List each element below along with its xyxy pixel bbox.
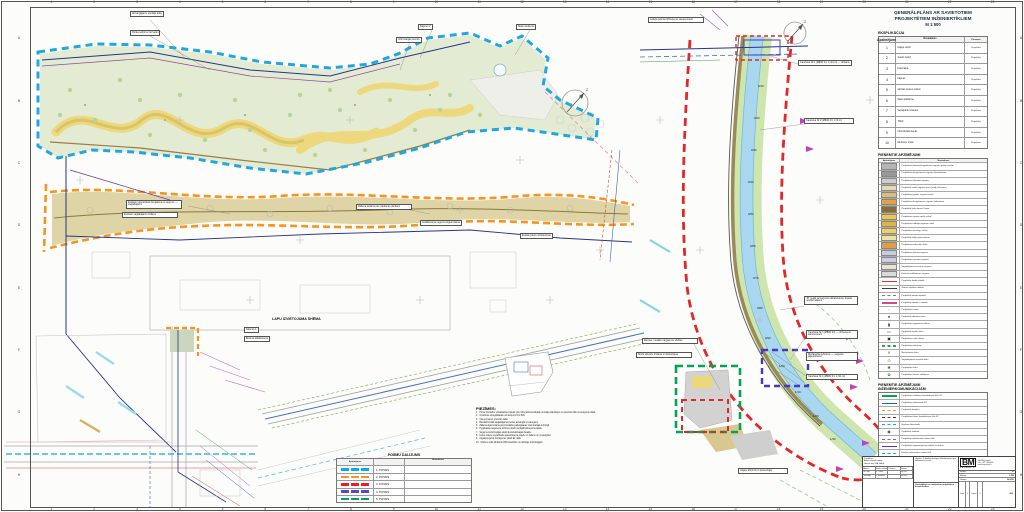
posmi-dash xyxy=(351,476,359,479)
callout-box: "R" veida armogrunts atbalstsiena, krast… xyxy=(804,296,858,305)
field-label: Stadija xyxy=(959,471,967,474)
legend-row: ⊙Saglabājamais esošais koks xyxy=(879,356,987,363)
legend-row: ●Projektētā atkritumu urna xyxy=(879,313,987,320)
legend-swatch: ⊙ xyxy=(879,357,900,363)
symbol-swatch: ● xyxy=(888,315,890,319)
fill-swatch xyxy=(881,163,897,169)
line-swatch xyxy=(882,446,897,447)
drawing-sheet: 1234567891011121314151617181920212223 12… xyxy=(0,0,1024,512)
dashed-line-swatch xyxy=(882,410,897,411)
legend-row: Zemes vienības robeža xyxy=(879,285,987,292)
note-number: 7. xyxy=(476,432,478,435)
posmi-dash xyxy=(341,483,349,486)
station-label: 0/60 xyxy=(750,244,756,248)
legend-row: Projektētais betona segums xyxy=(879,249,987,256)
legend-swatch xyxy=(879,199,900,205)
legend-swatch xyxy=(879,192,900,198)
grid-number: 15 xyxy=(629,507,672,511)
fill-swatch xyxy=(881,199,897,205)
note-number: 1. xyxy=(476,412,478,415)
explikacija-row: 3Koka laipaProjektēts xyxy=(879,63,987,74)
grid-number: 15 xyxy=(629,0,672,4)
posmi-dash xyxy=(361,498,369,501)
explikacija-row: 4KāpnesProjektēts xyxy=(879,74,987,85)
bm-logo: BM xyxy=(960,458,976,468)
legend-swatch xyxy=(879,415,900,421)
explikacija-row: 2Grants celiņšProjektēts xyxy=(879,53,987,64)
fill-swatch xyxy=(881,264,897,270)
note-number: 2. xyxy=(476,415,478,418)
legend-row: Projektēto darbu robeža xyxy=(879,277,987,284)
station-label: 1/30 xyxy=(830,437,836,441)
legend-label: Projektētais apgaismojuma kabelis un bal… xyxy=(900,445,987,449)
grid-letter: C xyxy=(14,132,24,194)
station-label: 1/00 xyxy=(779,364,785,368)
legend-label: Projektētais šķembu segums xyxy=(900,179,987,183)
callout-box: Kāpnes 2 xyxy=(418,24,433,30)
fill-swatch xyxy=(881,257,897,263)
callout-box: Caurteka Nr.4 (Ø600 b/t, L=11 m) xyxy=(806,374,858,380)
legend-row: Projektētais grants seguma celiņš xyxy=(879,191,987,198)
explikacija-note: Projektēts xyxy=(965,75,987,85)
station-label: 0/40 xyxy=(748,180,754,184)
explikacija-row: 7Velosipēdu novietneProjektēts xyxy=(879,106,987,117)
explikacija-row: 6Skatu platformaProjektēts xyxy=(879,95,987,106)
grid-letter: C xyxy=(1016,132,1024,194)
legend-swatch xyxy=(879,407,900,413)
callout-box: Zāliena sēšana pēc rakšanas darbiem xyxy=(356,204,412,210)
symbol-swatch: ▣ xyxy=(887,337,891,341)
explikacija-table: Apzīmējums Nosaukums Piezīmes 1Gājēju ce… xyxy=(878,36,988,148)
explikacija-num: 6 xyxy=(879,96,896,106)
explikacija-row: 1Gājēju celiņšProjektēts xyxy=(879,42,987,53)
legend-row: ✿Projektētais krūmu stādījums xyxy=(879,371,987,378)
explikacija-row: 9Informācijas stendsProjektēts xyxy=(879,127,987,138)
col-header: Apzīmējums xyxy=(879,37,896,42)
grid-letter: F xyxy=(14,319,24,381)
legend-row: ▣Projektētais velo statīvs xyxy=(879,335,987,342)
explikacija-note: Projektēts xyxy=(965,117,987,127)
grid-number: 1 xyxy=(30,507,73,511)
grid-number: 13 xyxy=(543,0,586,4)
note-text: Projektētās augstuma atzīmes skatīt vert… xyxy=(479,428,542,431)
legend-label: Projektētā zālāja atjaunošana xyxy=(900,237,987,241)
grid-number: 4 xyxy=(158,507,201,511)
station-label: 0/70 xyxy=(753,276,759,280)
grid-number: 5 xyxy=(201,0,244,4)
note-item: 6.Projektētās augstuma atzīmes skatīt ve… xyxy=(476,428,652,431)
col-header: Nosaukums xyxy=(405,459,471,465)
symbol-swatch: ⊙ xyxy=(887,359,890,363)
station-label: 0/30 xyxy=(751,148,757,152)
legend-label: Nocērtamais koks xyxy=(900,352,987,356)
legend1-title: PIEŅEMTIE APZĪMĒJUMI xyxy=(878,153,988,157)
note-number: 3. xyxy=(476,419,478,422)
legend-row: ◦Projektētais soliņš xyxy=(879,306,987,313)
legend-row: Projektētā drenāža xyxy=(879,406,987,413)
posmi-dash xyxy=(351,498,359,501)
fill-swatch xyxy=(881,228,897,234)
fill-swatch xyxy=(881,171,897,177)
explikacija-name: Skatu platforma xyxy=(896,96,965,106)
legend-swatch xyxy=(879,171,900,177)
station-label: 0/20 xyxy=(754,116,760,120)
station-label: 0/90 xyxy=(765,336,771,340)
symbol-swatch: ✕ xyxy=(887,351,890,355)
posmi-dash-symbol xyxy=(337,474,374,480)
note-number: 10. xyxy=(476,442,479,445)
explikacija-note: Projektēts xyxy=(965,43,987,53)
field-value: 04.2021 xyxy=(1006,478,1015,481)
grid-number: 17 xyxy=(715,507,758,511)
object-text: Publiskās ārtelpas labiekārtojums gar ūd… xyxy=(915,458,956,462)
legend-label: Projektētais sadzīves kanalizācijas tīkl… xyxy=(900,394,987,398)
explikacija-note: Projektēts xyxy=(965,54,987,64)
grid-number: 11 xyxy=(458,0,501,4)
grid-number: 18 xyxy=(757,0,800,4)
grid-number: 19 xyxy=(800,507,843,511)
sig-header: Amats xyxy=(863,467,876,470)
col-header xyxy=(374,459,405,465)
dashed-line-swatch xyxy=(882,439,897,440)
sig-header: Vārds, uzvārds xyxy=(876,467,889,470)
title-block-middle: Objekts: Publiskās ārtelpas labiekārtoju… xyxy=(914,457,959,507)
grid-number: 18 xyxy=(757,507,800,511)
sig-cell: D. Ozols xyxy=(876,471,889,474)
sig-cell: L. Krūmiņa xyxy=(876,475,889,478)
station-label: 0/10 xyxy=(758,84,764,88)
callout-box: Caurteka Nr.1 (Ø800 b/t, L=14 m) — tīrīš… xyxy=(798,60,852,66)
legend-label: Esošais ūdensvads xyxy=(900,423,987,427)
grid-number: 2 xyxy=(73,507,116,511)
legend-label: Projektētā betona apmale xyxy=(900,294,987,298)
posmi-dash xyxy=(341,490,349,493)
legend-label: Zemes vienības robeža xyxy=(900,287,987,291)
legend-label: Projektētā norāžu zīme xyxy=(900,330,987,334)
note-item: 9.Apgaismojuma risinājumus skatīt EL daļ… xyxy=(476,438,652,441)
legend-swatch xyxy=(879,400,900,406)
callout-box: Grāvja posma tīrīšana no sanesumiem xyxy=(648,17,704,23)
legend-row: Esošais asfaltbetona segums xyxy=(879,270,987,277)
posmi-desc xyxy=(405,481,471,487)
explikacija-num: 1 xyxy=(879,43,896,53)
legend-label: Projektēto darbu robeža xyxy=(900,280,987,284)
field-label: Mērogs xyxy=(959,474,967,477)
symbol-swatch: ◉ xyxy=(887,430,891,434)
explikacija-name: Koka laipa xyxy=(896,64,965,74)
explikacija-num: 5 xyxy=(879,85,896,95)
posmi-label: 5. POSMS xyxy=(374,496,405,502)
grid-number: 23 xyxy=(971,0,1014,4)
legend-swatch xyxy=(879,250,900,256)
legend-row: Projektētā smilts seguma zona (rotaļu la… xyxy=(879,184,987,191)
grid-number: 14 xyxy=(586,507,629,511)
legend-label: Projektētais grants seguma celiņš xyxy=(900,193,987,197)
legend-swatch xyxy=(879,293,900,299)
posmi-row: 3. POSMS xyxy=(337,480,471,487)
callout-box: Kāpnes 1 xyxy=(244,327,259,333)
legend-label: Projektētais velo statīvs xyxy=(900,337,987,341)
page-label: Lapas xyxy=(970,482,978,507)
fill-swatch xyxy=(881,214,897,220)
fill-swatch xyxy=(881,178,897,184)
legend-swatch xyxy=(879,235,900,241)
legend-row: Projektētais bruģakmens segums iebrauktu… xyxy=(879,170,987,177)
legend-swatch xyxy=(879,443,900,449)
symbols-legend-table: Apzīmējums Nosaukums Projektētais betona… xyxy=(878,158,988,379)
explikacija-num: 3 xyxy=(879,64,896,74)
note-text: Darbus veikt atbilstoši LBN prasībām un … xyxy=(481,442,544,445)
explikacija-num: 10 xyxy=(879,138,896,148)
explikacija-num: 2 xyxy=(879,54,896,64)
grid-number: 6 xyxy=(244,507,287,511)
posmi-desc xyxy=(405,466,471,472)
grid-letter: A xyxy=(1016,7,1024,69)
grid-number: 20 xyxy=(843,0,886,4)
north-label: Z xyxy=(804,20,806,24)
legend-label: Projektētā smilts seguma zona (rotaļu la… xyxy=(900,186,987,190)
legend-swatch xyxy=(879,286,900,292)
grid-letter: B xyxy=(14,69,24,131)
note-number: 9. xyxy=(476,438,478,441)
legend-row: Projektētais gumijas segums xyxy=(879,256,987,263)
fill-swatch xyxy=(881,242,897,248)
grid-number: 16 xyxy=(672,0,715,4)
posmi-row: 1. POSMS xyxy=(337,465,471,472)
grid-number: 7 xyxy=(287,0,330,4)
legend-swatch xyxy=(879,343,900,349)
explikacija-note: Projektēts xyxy=(965,85,987,95)
line-swatch xyxy=(882,302,897,303)
station-label: 1/20 xyxy=(813,414,819,418)
legend-swatch xyxy=(879,257,900,263)
bm-address-line: www.bmprojekts.lv xyxy=(978,464,994,466)
callout-box: Mežaparka iebrauce — seguma atjaunošana xyxy=(806,352,858,361)
grid-letters-right: ABCDEFGH xyxy=(1016,7,1024,506)
col-header: Nosaukums xyxy=(896,37,965,42)
signature-row: IzstrādājaL. Krūmiņa04.2021 xyxy=(863,475,913,479)
title-block-right: BM PROJEKTS SIA "BM-projekts"Tālr. +371 … xyxy=(959,457,1015,507)
legend-row: Saglabājamais esošais segums xyxy=(879,263,987,270)
grid-letter: G xyxy=(14,381,24,443)
note-text: Izmantots topogrāfiskais uzmērījums M 1:… xyxy=(479,415,525,418)
grid-number: 10 xyxy=(415,0,458,4)
notes-title: PIEZĪMES: xyxy=(476,406,652,411)
explikacija-title: EKSPLIKĀCIJA xyxy=(878,31,988,35)
grid-number: 13 xyxy=(543,507,586,511)
line-swatch xyxy=(882,403,897,404)
legend2-subtitle: INŽENIERKOMUNIKĀCIJĀM xyxy=(878,387,988,391)
sheet-layout-schema-title: LAPU IZVIETOJUMA SHĒMA xyxy=(272,317,321,321)
grid-letter: G xyxy=(1016,381,1024,443)
posmi-label: 2. POSMS xyxy=(374,474,405,480)
callout-box: Informācijas stends xyxy=(396,37,422,43)
posmi-desc xyxy=(405,496,471,502)
station-label: 0/50 xyxy=(748,212,754,216)
posmi-row: 4. POSMS xyxy=(337,488,471,495)
legend-label: Projektētais pastaigu celiņš xyxy=(900,229,987,233)
legend-swatch: ◉ xyxy=(879,429,900,435)
legend-swatch xyxy=(879,214,900,220)
posmi-dash-symbol xyxy=(337,466,374,472)
grid-letter: D xyxy=(14,194,24,256)
sig-cell xyxy=(888,471,901,474)
legend-label: Projektētais koka dēļu klājs xyxy=(900,244,987,248)
posmi-dash xyxy=(341,476,349,479)
posmi-dash xyxy=(341,498,349,501)
explikacija-name: Grants celiņš xyxy=(896,54,965,64)
page-label: Lapa xyxy=(959,482,966,507)
sig-header: Paraksts xyxy=(888,467,901,470)
grid-number: 8 xyxy=(329,0,372,4)
dashed-line-swatch xyxy=(882,295,897,296)
posmi-label: 1. POSMS xyxy=(374,466,405,472)
legend-label: Projektētais apgaismes balsts xyxy=(900,323,987,327)
posmi-table-block: POSMU DALĪJUMS Apzīmējums Nosaukums 1. P… xyxy=(336,453,472,503)
station-label: 0/80 xyxy=(757,306,763,310)
explikacija-num: 8 xyxy=(879,117,896,127)
sig-cell: Izstrādāja xyxy=(863,475,876,478)
legend-swatch xyxy=(879,228,900,234)
legend-swatch xyxy=(879,206,900,212)
legend-swatch xyxy=(879,221,900,227)
grid-letter: H xyxy=(1016,444,1024,506)
explikacija-row: 5Atpūtas vieta ar soliemProjektēts xyxy=(879,84,987,95)
grid-number: 22 xyxy=(928,0,971,4)
legend-row: Projektētais pastaigu celiņš xyxy=(879,227,987,234)
dashed-line-swatch xyxy=(882,424,897,425)
grid-letter: A xyxy=(14,7,24,69)
explikacija-note: Projektēts xyxy=(965,138,987,148)
grid-number: 2 xyxy=(73,0,116,4)
legend-swatch xyxy=(879,278,900,284)
explikacija-note: Projektēts xyxy=(965,96,987,106)
note-text: Segumu konstrukcijas skatīt konstruktīva… xyxy=(479,432,531,435)
legend-label: Projektētais dzīvžogs xyxy=(900,344,987,348)
legend-row: Projektētais koka dēļu klājs xyxy=(879,241,987,248)
drawing-title: ĢENERĀLPLĀNS AR SAVIETOTIEM PROJEKTĒTIEM… xyxy=(878,10,988,21)
fill-swatch xyxy=(881,185,897,191)
grid-number: 19 xyxy=(800,0,843,4)
legend-swatch: ✕ xyxy=(879,350,900,356)
callout-box: Esošais saglabājams zāliens xyxy=(122,212,178,218)
legend-row: Projektētais dzīvžogs xyxy=(879,342,987,349)
legend-row: Projektētais apgaismojuma kabelis un bal… xyxy=(879,442,987,449)
explikacija-name: Atpūtas vieta ar soliem xyxy=(896,85,965,95)
explikacija-name: Velosipēdu novietne xyxy=(896,107,965,117)
legend-label: Projektētais gumijas segums xyxy=(900,258,987,262)
fill-swatch xyxy=(881,235,897,241)
legend-label: Projektētais grants-smilts celiņš xyxy=(900,215,987,219)
fill-swatch xyxy=(881,221,897,227)
posmi-dash xyxy=(361,490,369,493)
legend-row: ✕Nocērtamais koks xyxy=(879,349,987,356)
grid-number: 11 xyxy=(458,507,501,511)
explikacija-name: Tiltiņš xyxy=(896,117,965,127)
legend-row: Projektētā zālāja atjaunošana xyxy=(879,234,987,241)
fill-swatch xyxy=(881,250,897,256)
grid-letter: F xyxy=(1016,319,1024,381)
explikacija-row: 10Atkritumu urnasProjektēts xyxy=(879,137,987,148)
legend-label: Esošais asfaltbetona segums xyxy=(900,273,987,277)
grid-number: 9 xyxy=(372,507,415,511)
callout-box: Slūžu aizvaru tīrīšana un krāsošana xyxy=(636,352,692,358)
legend-row: Projektētais dabīgā seguma celiņš xyxy=(879,220,987,227)
legend-swatch xyxy=(879,422,900,428)
callout-box: Caurteka Nr.2 (Ø600 b/t, L=9 m) xyxy=(804,118,854,124)
posmi-dash xyxy=(361,468,369,471)
legend-label: Projektētā skataka xyxy=(900,430,987,434)
sig-header: Datums xyxy=(901,467,914,470)
note-item: 2.Izmantots topogrāfiskais uzmērījums M … xyxy=(476,415,652,418)
note-number: 8. xyxy=(476,435,478,438)
grid-letter: E xyxy=(1016,257,1024,319)
station-label: 1/10 xyxy=(795,390,801,394)
callout-box: Gājēju tiltiņš Nr.2 (koka klājs) xyxy=(738,468,788,474)
legend-label: Projektētais soliņš xyxy=(900,308,987,312)
posmi-dash xyxy=(351,490,359,493)
legend-row: Projektētais lietus kanalizācijas tīkls … xyxy=(879,414,987,421)
col-header: Apzīmējums xyxy=(337,459,374,465)
legend-label: Projektētais betona segums xyxy=(900,251,987,255)
grid-number: 3 xyxy=(116,0,159,4)
note-text: Visus izmērus precizēt dabā. xyxy=(479,419,508,422)
posmi-label: 4. POSMS xyxy=(374,489,405,495)
sig-cell: 04.2021 xyxy=(901,471,914,474)
legend-label: Projektētā koka terase / laipa xyxy=(900,208,987,212)
bm-logo-sub: PROJEKTS xyxy=(960,467,976,469)
explikacija-name: Atkritumu urnas xyxy=(896,138,965,148)
legend-label: Projektētā drenāža xyxy=(900,409,987,413)
legend-label: Projektētais lietus kanalizācijas tīkls … xyxy=(900,416,987,420)
legend-swatch: ● xyxy=(879,314,900,320)
legend-label: Projektētais bruģakmens segums laukumiem xyxy=(900,201,987,205)
explikacija-note: Projektēts xyxy=(965,107,987,117)
explikacija-name: Informācijas stends xyxy=(896,128,965,138)
legend-swatch xyxy=(879,185,900,191)
grid-number: 14 xyxy=(586,0,629,4)
note-number: 5. xyxy=(476,425,478,428)
explikacija-note: Projektēts xyxy=(965,64,987,74)
legend-swatch xyxy=(879,393,900,399)
grid-number: 16 xyxy=(672,507,715,511)
grid-number: 6 xyxy=(244,0,287,4)
posmi-dash xyxy=(361,476,369,479)
grid-number: 17 xyxy=(715,0,758,4)
legend-swatch: ✱ xyxy=(879,365,900,371)
col-header: Nosaukums xyxy=(900,159,987,162)
note-number: 6. xyxy=(476,428,478,431)
grid-number: 5 xyxy=(201,507,244,511)
grid-letter: B xyxy=(1016,69,1024,131)
legend-label: Projektētā apmale / nomale xyxy=(900,301,987,305)
page-value: 1 xyxy=(978,482,982,507)
legend-label: Projektētais krūmu stādījums xyxy=(900,373,987,377)
legend-row: ▮Projektētais apgaismes balsts xyxy=(879,320,987,327)
posmi-desc xyxy=(405,489,471,495)
grid-number: 3 xyxy=(116,507,159,511)
grid-letter: E xyxy=(14,257,24,319)
posmi-dash xyxy=(351,468,359,471)
legend-row: Projektētā apmale / nomale xyxy=(879,299,987,306)
note-item: 7.Segumu konstrukcijas skatīt konstruktī… xyxy=(476,432,652,435)
posmi-dash xyxy=(351,483,359,486)
legend-swatch xyxy=(879,264,900,270)
grid-number: 21 xyxy=(886,0,929,4)
posmi-dash-symbol xyxy=(337,481,374,487)
legend-row: Projektētais šķembu segums xyxy=(879,177,987,184)
legend-row: Esošais ūdensvads xyxy=(879,421,987,428)
